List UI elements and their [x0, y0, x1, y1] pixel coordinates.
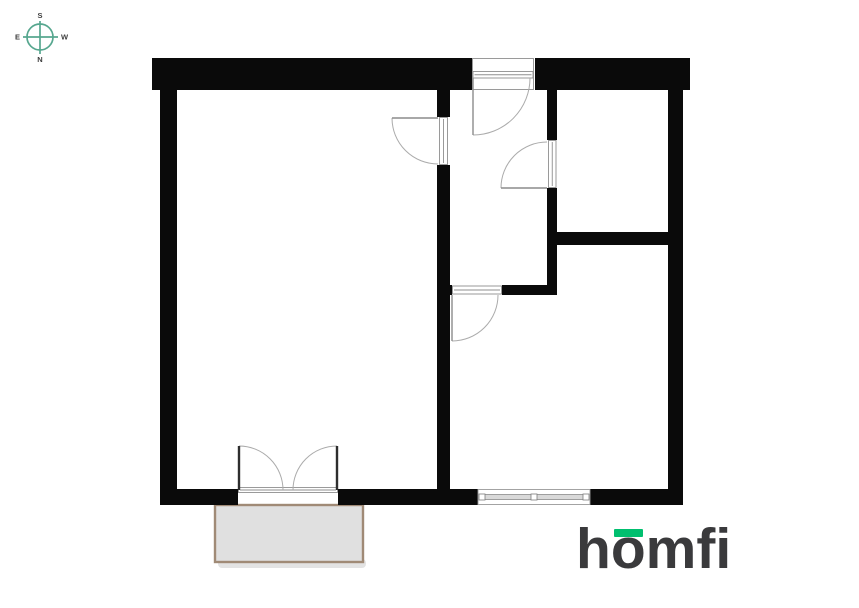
floor-plan-page: S N E W homfi	[0, 0, 859, 608]
compass-rose: S N E W	[0, 0, 80, 80]
balcony	[215, 505, 363, 562]
compass-label-right: W	[61, 33, 69, 42]
wall-segment	[437, 165, 450, 489]
door-swing-arc	[501, 142, 547, 188]
wall-segment	[338, 489, 478, 505]
door-swing-arc	[293, 446, 337, 490]
wall-segment	[547, 188, 557, 295]
door-swing-arc	[452, 295, 498, 341]
wall-segment	[502, 285, 557, 295]
door-swing-arc	[392, 118, 438, 164]
wall-segment	[152, 58, 472, 90]
logo-text-mfi: mfi	[646, 517, 732, 581]
compass-label-bottom: N	[37, 55, 42, 64]
wall-segment	[160, 90, 177, 505]
wall-segment	[437, 90, 450, 117]
door-swing-arc	[239, 446, 283, 490]
window-tick	[583, 494, 589, 500]
wall-segment	[557, 232, 668, 245]
logo-text-o: o	[611, 517, 646, 581]
logo-text-h: h	[576, 517, 611, 581]
wall-segment	[547, 90, 557, 140]
compass-label-left: E	[15, 33, 20, 42]
wall-segment	[437, 285, 452, 295]
wall-segment	[590, 489, 683, 505]
logo-o-wrap: o	[611, 521, 646, 578]
window-tick	[531, 494, 537, 500]
wall-segment	[535, 58, 690, 90]
compass-label-top: S	[37, 11, 42, 20]
window-tick	[479, 494, 485, 500]
wall-segment	[668, 90, 683, 505]
homfi-logo: homfi	[576, 521, 731, 578]
wall-segment	[160, 489, 238, 505]
logo-accent-bar	[614, 529, 643, 537]
